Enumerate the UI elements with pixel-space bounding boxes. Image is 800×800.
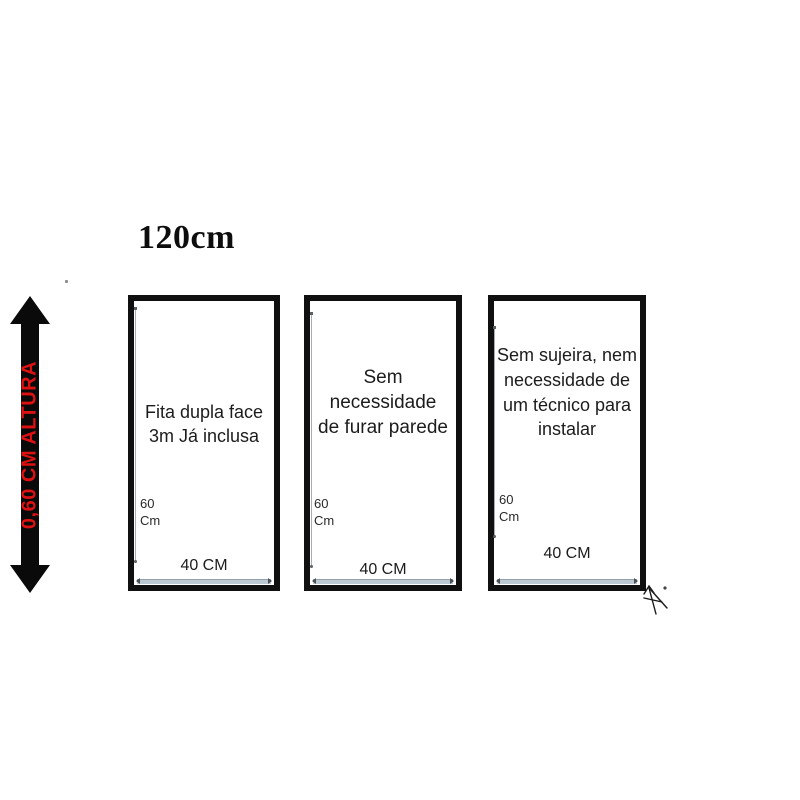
panel-feature-text: Sem sujeira, nem necessidade de um técni…	[494, 343, 640, 442]
panel-board-1: Fita dupla face 3m Já inclusa 60 Cm 40 C…	[128, 295, 280, 591]
height-dimension-arrow: 0,60 CM ALTURA	[10, 296, 50, 593]
pen-scribble-mark	[636, 580, 676, 620]
panel-feature-text: Fita dupla face 3m Já inclusa	[134, 401, 274, 449]
width-value-label: 40 CM	[310, 561, 456, 579]
total-width-label: 120cm	[138, 219, 235, 257]
diagram-canvas: 120cm 0,60 CM ALTURA Fita dupla face 3m …	[0, 0, 800, 800]
panel-feature-text: Sem necessidade de furar parede	[310, 365, 456, 440]
panel-board-2: Sem necessidade de furar parede 60 Cm 40…	[304, 295, 462, 591]
arrow-down-icon	[10, 565, 50, 593]
height-value-label: 60 Cm	[140, 496, 160, 530]
width-value-label: 40 CM	[134, 557, 274, 575]
scan-speck	[65, 280, 68, 283]
height-value-label: 60 Cm	[499, 492, 519, 526]
width-measure-bar	[497, 579, 637, 584]
width-value-label: 40 CM	[494, 545, 640, 563]
width-measure-bar	[137, 579, 271, 584]
width-measure-bar	[313, 579, 453, 584]
height-value-label: 60 Cm	[314, 496, 334, 530]
height-dimension-label: 0,60 CM ALTURA	[19, 360, 42, 528]
panel-board-3: Sem sujeira, nem necessidade de um técni…	[488, 295, 646, 591]
